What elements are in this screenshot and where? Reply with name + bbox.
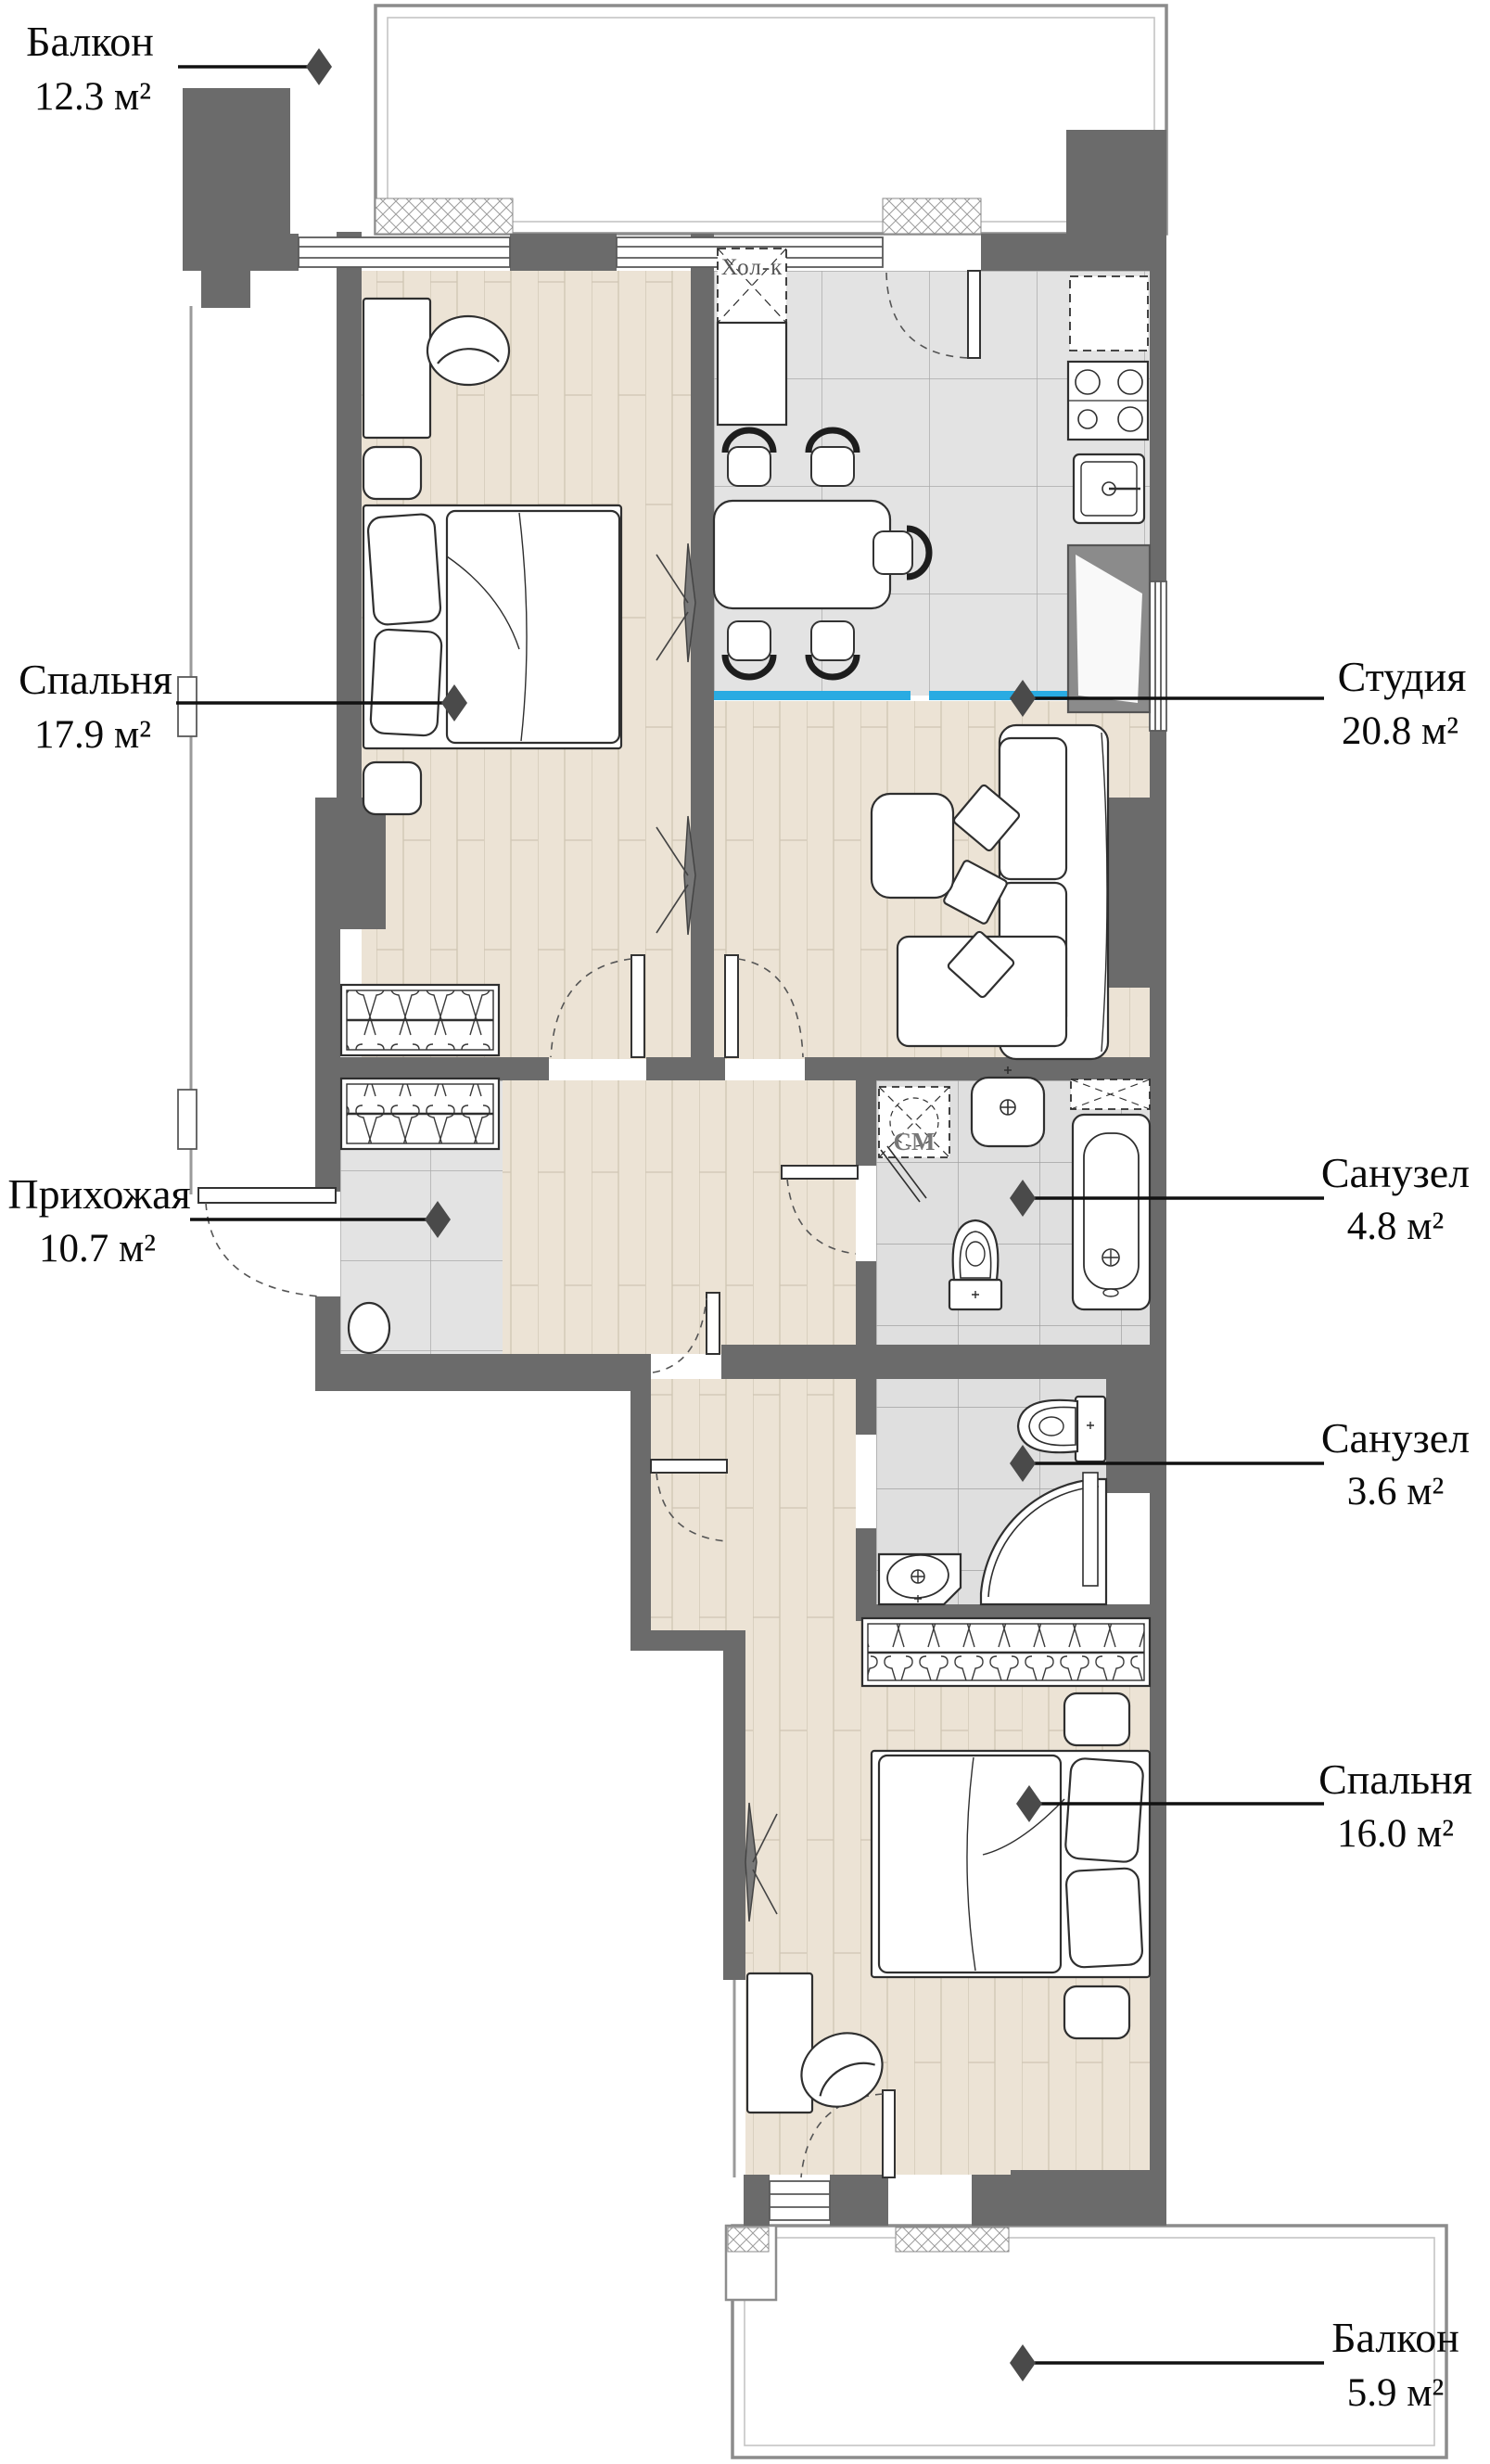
wall-bottom-upper-block — [315, 1354, 651, 1391]
wall-right-upper — [1150, 234, 1166, 581]
wall-bath1-left-b — [856, 1261, 876, 1354]
kitchen-counter — [718, 323, 786, 425]
wall-corridor-left — [630, 1354, 651, 1651]
wardrobe-hangers — [341, 1079, 499, 1149]
floor-plan-drawing: Хол-к — [0, 0, 1490, 2464]
pillow — [370, 629, 442, 736]
marker-diamond — [306, 48, 332, 85]
room-name: Спальня — [19, 656, 172, 703]
wall-top-c — [981, 234, 1166, 271]
room-name: Балкон — [26, 18, 154, 65]
wall-right-lower — [1150, 731, 1166, 2177]
tall-cabinet — [1068, 545, 1150, 712]
room-area: 16.0 м² — [1337, 1812, 1454, 1856]
pillow — [1064, 1757, 1143, 1862]
toilet — [949, 1220, 1001, 1309]
wall-bath2-right-block — [1106, 1379, 1150, 1493]
wall-bath2-left-a — [856, 1379, 876, 1435]
window-studio-right — [1150, 581, 1166, 731]
dining-table — [714, 501, 890, 608]
wardrobe-hangers — [341, 985, 499, 1055]
nightstand — [363, 447, 421, 499]
room-area: 17.9 м² — [34, 713, 151, 757]
wall-mid-b — [805, 1057, 1150, 1080]
wall-mid-a — [315, 1057, 549, 1080]
washing-machine: СМ — [879, 1087, 949, 1157]
desk — [363, 299, 430, 438]
wall-shaft — [1103, 798, 1150, 988]
armchair — [427, 316, 509, 385]
stove — [1068, 362, 1148, 440]
coffee-table — [872, 794, 953, 898]
room-area: 20.8 м² — [1342, 709, 1458, 753]
corridor-floor — [651, 1379, 856, 1639]
room-name: Санузел — [1321, 1414, 1470, 1462]
room-name: Балкон — [1331, 2314, 1459, 2361]
pouf — [349, 1303, 389, 1353]
wall-bath1-bottom — [721, 1345, 1150, 1379]
nightstand — [1064, 1986, 1129, 2038]
room-name: Санузел — [1321, 1149, 1470, 1196]
washer-label: СМ — [894, 1128, 936, 1155]
bath-sink — [879, 1552, 961, 1604]
nightstand — [1064, 1693, 1129, 1745]
bathtub — [1073, 1115, 1150, 1309]
room-area: 5.9 м² — [1347, 2371, 1445, 2415]
bed-double — [363, 505, 621, 748]
wall-corner-bottom-right — [1011, 2170, 1166, 2226]
fridge-label: Хол-к — [721, 255, 783, 280]
room-name: Студия — [1338, 653, 1467, 700]
room-area: 3.6 м² — [1347, 1470, 1445, 1513]
wall-bedroom2-left — [723, 1646, 745, 1980]
fridge: Хол-к — [718, 249, 786, 323]
wall-top-b — [510, 234, 617, 271]
wall-corner-top-right — [1066, 130, 1166, 234]
window-bedroom2 — [770, 2181, 830, 2220]
kitchen-sink — [1074, 454, 1144, 523]
bath-sink — [972, 1066, 1044, 1146]
pillow — [367, 514, 441, 626]
room-area: 12.3 м² — [34, 75, 151, 119]
wall-mid-stub — [646, 1057, 725, 1080]
room-area: 4.8 м² — [1347, 1205, 1445, 1248]
nightstand — [363, 762, 421, 814]
wall-bedroom1-left — [337, 232, 362, 802]
wall-top-a — [183, 234, 299, 271]
pillow — [1065, 1868, 1142, 1968]
room-name: Прихожая — [7, 1170, 190, 1218]
towel-shelf — [1071, 1079, 1150, 1109]
window-bedroom1 — [299, 237, 510, 267]
wall-b2-bottom-a — [744, 2175, 770, 2226]
wall-bath1-left-a — [856, 1080, 876, 1166]
lower-hall-floor — [503, 1080, 856, 1354]
room-name: Спальня — [1318, 1755, 1472, 1803]
counter-dashed — [1070, 276, 1148, 351]
desk — [747, 1973, 812, 2113]
door-entrance — [198, 1188, 336, 1296]
wall-b2-bottom-b — [830, 2175, 888, 2226]
duvet — [447, 511, 619, 743]
wall-niche-1 — [178, 677, 197, 736]
bed-double — [872, 1751, 1150, 1977]
floor-plan-page: Хол-к — [0, 0, 1490, 2464]
room-area: 10.7 м² — [39, 1227, 156, 1270]
wall-niche-2 — [178, 1090, 197, 1149]
wardrobe-hangers — [862, 1618, 1150, 1686]
wall-b2-bottom-c — [972, 2175, 1014, 2226]
wall-corner-top-left — [183, 88, 290, 234]
wall-left-block — [315, 798, 386, 929]
wall-divider-bedroom-studio — [691, 234, 714, 1059]
